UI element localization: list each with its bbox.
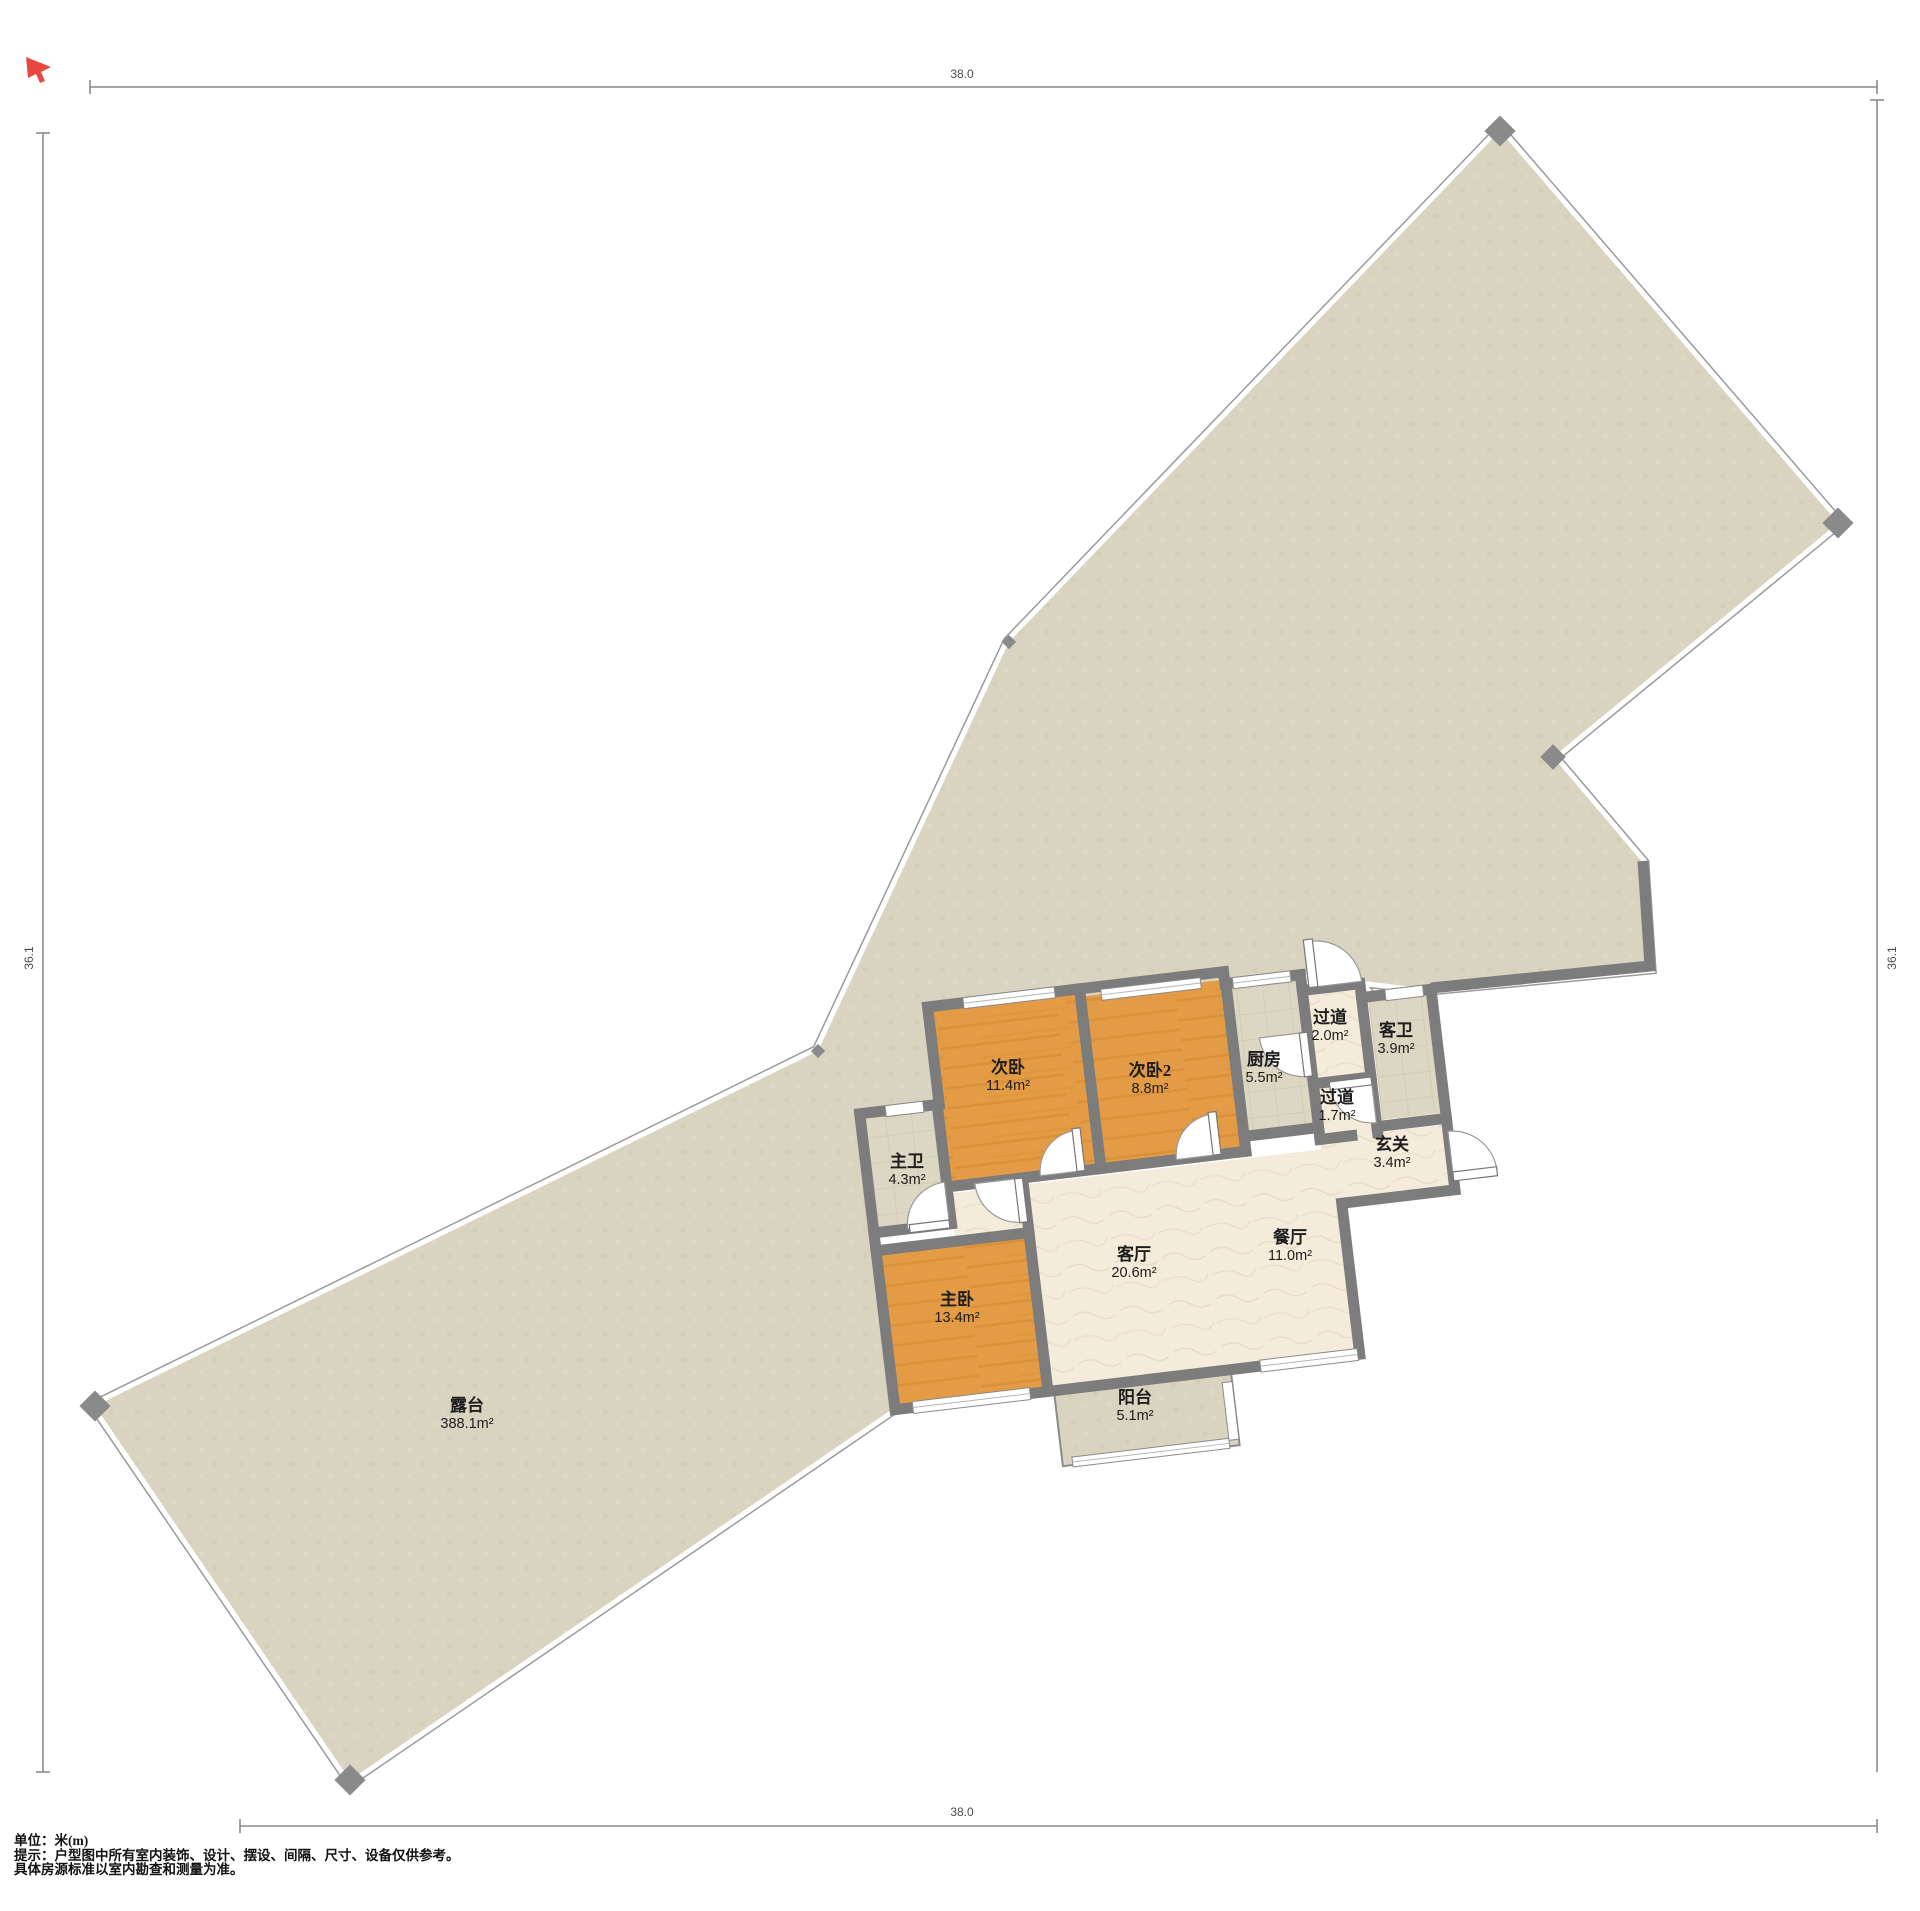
dimension-bottom: 38.0 bbox=[950, 1805, 973, 1819]
room-label-master-bedroom: 主卧13.4m² bbox=[934, 1290, 979, 1326]
room-area: 11.0m² bbox=[1268, 1247, 1312, 1264]
room-name: 主卧 bbox=[934, 1290, 979, 1310]
floor-plan-canvas bbox=[0, 0, 1920, 1911]
room-name: 客卫 bbox=[1377, 1021, 1414, 1041]
note-line2: 具体房源标准以室内勘查和测量为准。 bbox=[14, 1863, 460, 1878]
dimension-right: 36.1 bbox=[1885, 946, 1899, 969]
room-label-entryway: 玄关3.4m² bbox=[1373, 1135, 1410, 1171]
room-label-hallway-lower: 过道1.7m² bbox=[1318, 1088, 1355, 1124]
room-area: 2.0m² bbox=[1311, 1027, 1348, 1044]
room-area: 1.7m² bbox=[1318, 1107, 1355, 1124]
room-name: 露台 bbox=[440, 1396, 493, 1416]
room-area: 11.4m² bbox=[986, 1077, 1030, 1094]
room-label-balcony: 阳台5.1m² bbox=[1116, 1388, 1153, 1424]
room-label-secondary-bedroom: 次卧11.4m² bbox=[986, 1058, 1030, 1094]
room-area: 20.6m² bbox=[1111, 1264, 1156, 1281]
disclaimer-notes: 单位：米(m) 提示：户型图中所有室内装饰、设计、摆设、间隔、尺寸、设备仅供参考… bbox=[14, 1834, 460, 1878]
room-name: 主卫 bbox=[888, 1152, 925, 1172]
room-area: 388.1m² bbox=[440, 1415, 493, 1432]
room-area: 5.1m² bbox=[1116, 1407, 1153, 1424]
terrace-outline bbox=[95, 131, 1838, 1780]
dimension-left: 36.1 bbox=[22, 946, 36, 969]
apartment-block bbox=[846, 920, 1526, 1487]
floor-plan-page: 38.0 38.0 36.1 36.1 露台388.1m²次卧11.4m²次卧2… bbox=[0, 0, 1920, 1911]
room-label-master-bathroom: 主卫4.3m² bbox=[888, 1152, 925, 1188]
dimension-top: 38.0 bbox=[950, 67, 973, 81]
room-name: 过道 bbox=[1311, 1008, 1348, 1028]
room-area: 3.4m² bbox=[1373, 1154, 1410, 1171]
room-label-living-room: 客厅20.6m² bbox=[1111, 1245, 1156, 1281]
room-label-terrace: 露台388.1m² bbox=[440, 1396, 493, 1432]
room-name: 客厅 bbox=[1111, 1245, 1156, 1265]
terrace-floor bbox=[95, 131, 1838, 1780]
room-name: 次卧 bbox=[986, 1058, 1030, 1078]
room-name: 玄关 bbox=[1373, 1135, 1410, 1155]
note-unit: 单位：米(m) bbox=[14, 1834, 460, 1849]
room-area: 3.9m² bbox=[1377, 1040, 1414, 1057]
room-area: 4.3m² bbox=[888, 1171, 925, 1188]
cursor-arrow-icon bbox=[26, 57, 51, 83]
room-name: 过道 bbox=[1318, 1088, 1355, 1108]
room-name: 餐厅 bbox=[1268, 1228, 1312, 1248]
room-label-secondary-bedroom-2: 次卧28.8m² bbox=[1129, 1061, 1172, 1097]
room-area: 8.8m² bbox=[1129, 1080, 1172, 1097]
room-area: 13.4m² bbox=[934, 1309, 979, 1326]
note-line1: 提示：户型图中所有室内装饰、设计、摆设、间隔、尺寸、设备仅供参考。 bbox=[14, 1849, 460, 1864]
room-area: 5.5m² bbox=[1245, 1069, 1282, 1086]
room-name: 厨房 bbox=[1245, 1050, 1282, 1070]
room-label-kitchen: 厨房5.5m² bbox=[1245, 1050, 1282, 1086]
room-label-dining-room: 餐厅11.0m² bbox=[1268, 1228, 1312, 1264]
room-name: 次卧2 bbox=[1129, 1061, 1172, 1081]
room-label-hallway-upper: 过道2.0m² bbox=[1311, 1008, 1348, 1044]
room-name: 阳台 bbox=[1116, 1388, 1153, 1408]
room-label-guest-bathroom: 客卫3.9m² bbox=[1377, 1021, 1414, 1057]
